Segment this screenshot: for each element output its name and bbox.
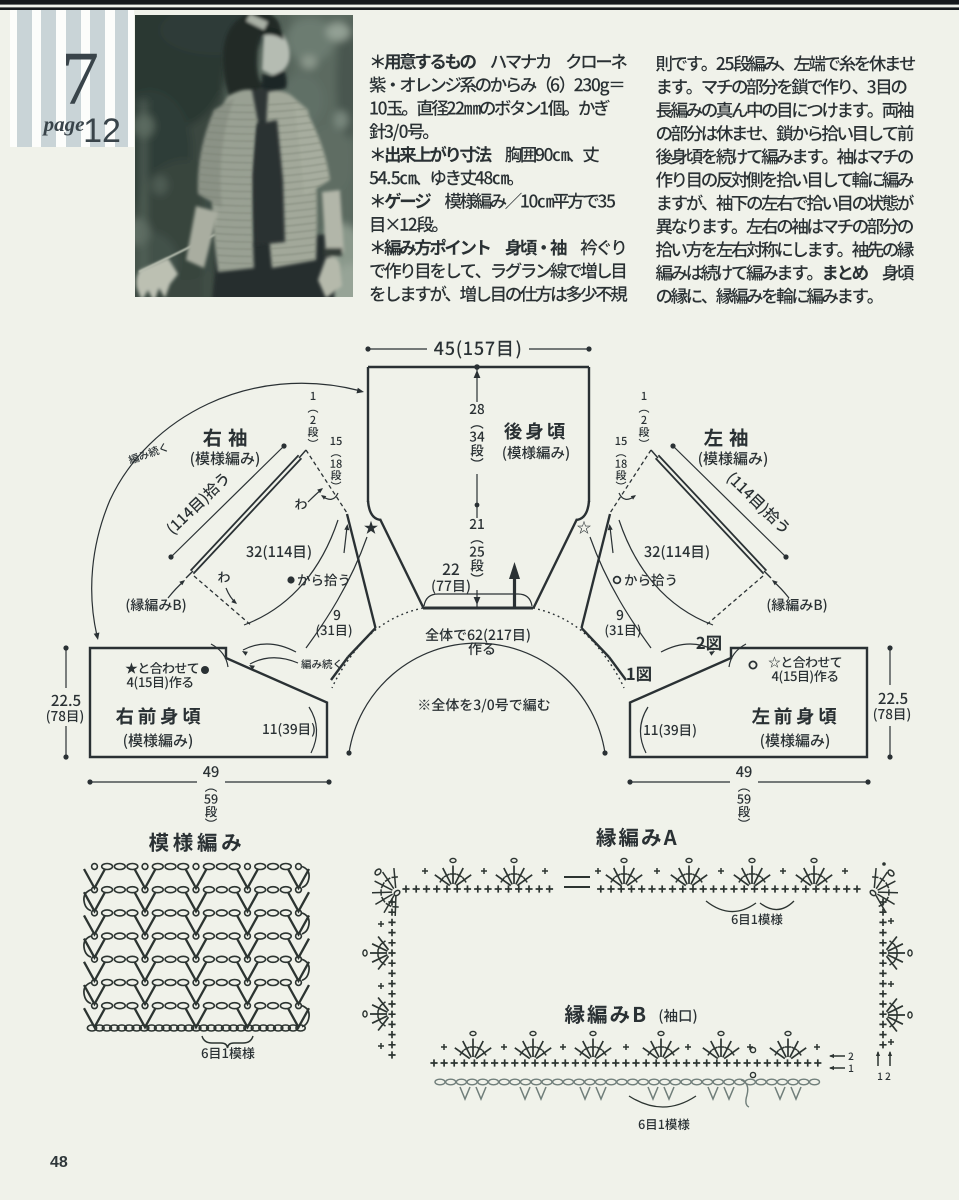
- svg-text:12: 12: [83, 112, 121, 150]
- svg-text:page: page: [42, 112, 85, 136]
- svg-text:7: 7: [61, 37, 99, 121]
- svg-text:48: 48: [50, 1154, 68, 1171]
